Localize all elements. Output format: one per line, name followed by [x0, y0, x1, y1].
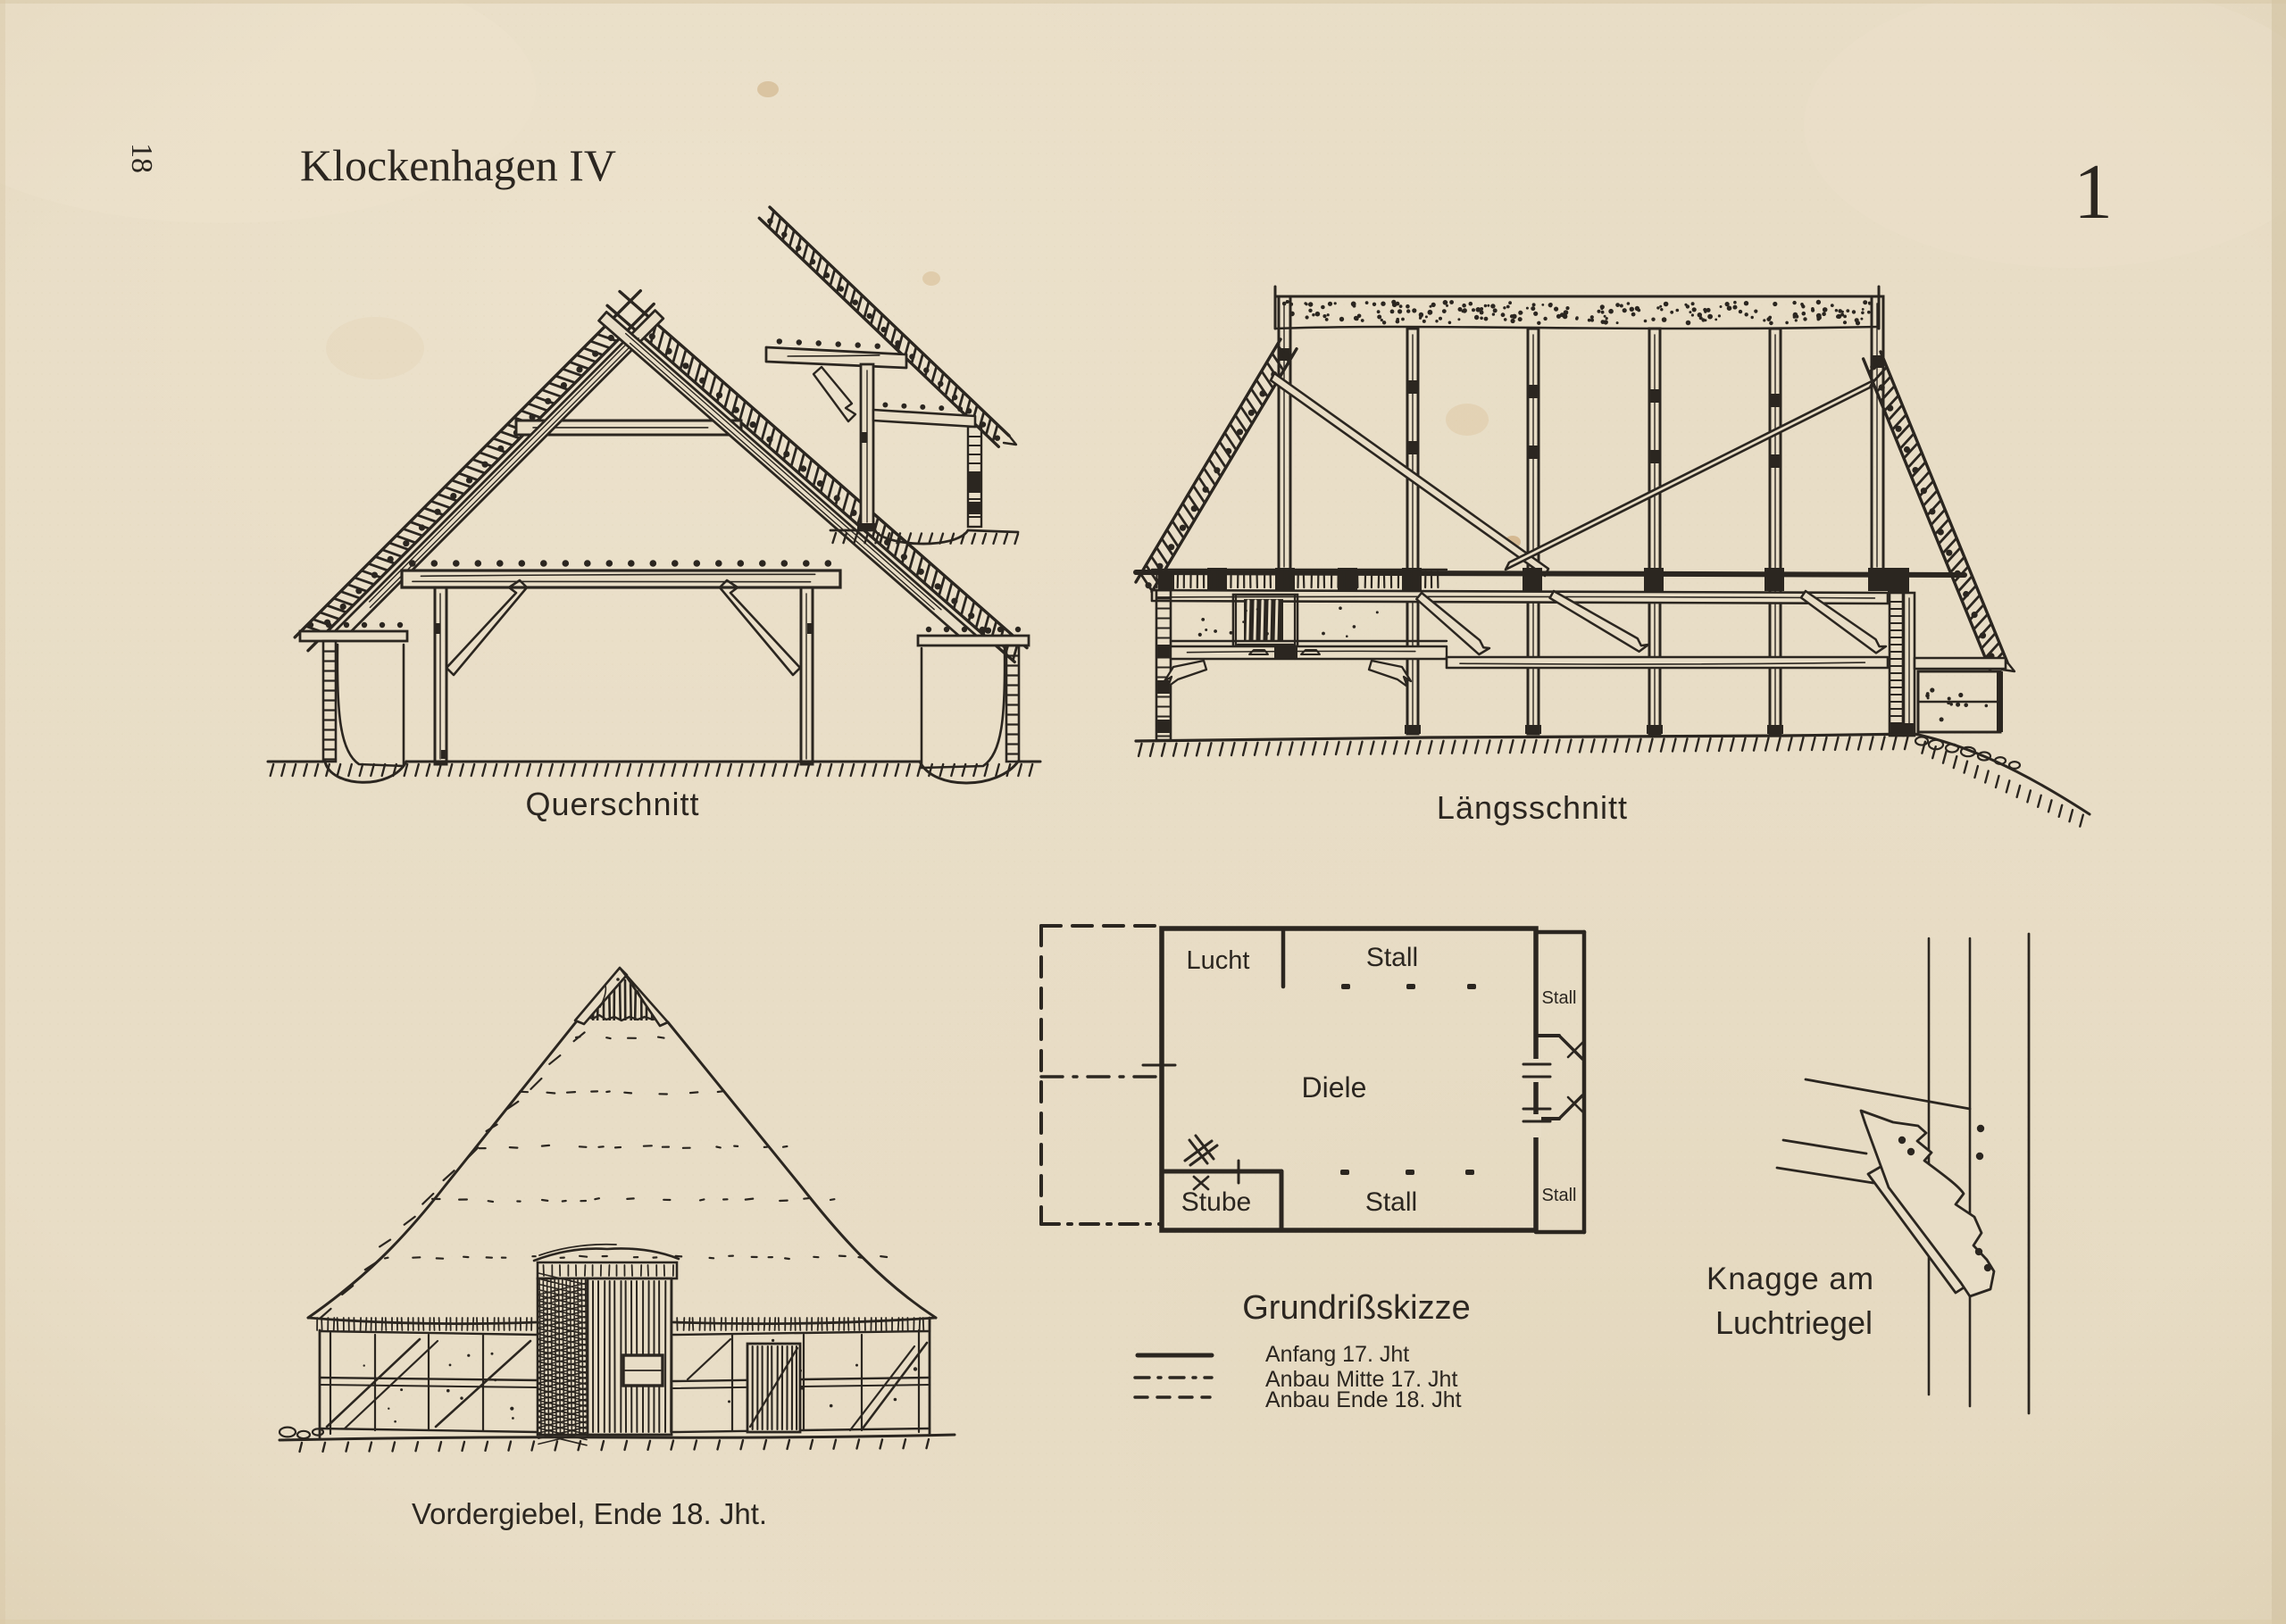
- svg-text:Längsschnitt: Längsschnitt: [1437, 789, 1628, 826]
- svg-text:Vordergiebel, Ende 18. Jht.: Vordergiebel, Ende 18. Jht.: [412, 1497, 767, 1530]
- svg-text:Stall: Stall: [1542, 1186, 1577, 1205]
- svg-text:Klockenhagen IV: Klockenhagen IV: [300, 140, 616, 190]
- svg-text:Anbau Ende 18. Jht: Anbau Ende 18. Jht: [1265, 1387, 1462, 1412]
- svg-text:1: 1: [2073, 149, 2113, 236]
- svg-text:Querschnitt: Querschnitt: [525, 786, 699, 822]
- svg-text:Diele: Diele: [1302, 1071, 1367, 1103]
- svg-text:Luchtriegel: Luchtriegel: [1715, 1304, 1873, 1341]
- svg-text:Stall: Stall: [1542, 988, 1577, 1008]
- svg-text:18: 18: [125, 143, 158, 173]
- svg-text:Stube: Stube: [1181, 1187, 1251, 1217]
- svg-text:Stall: Stall: [1366, 943, 1418, 972]
- svg-text:Stall: Stall: [1365, 1187, 1417, 1217]
- svg-text:Lucht: Lucht: [1187, 946, 1250, 975]
- svg-text:Knagge am: Knagge am: [1706, 1262, 1874, 1296]
- svg-text:Anfang 17. Jht: Anfang 17. Jht: [1265, 1342, 1409, 1367]
- svg-text:Grundrißskizze: Grundrißskizze: [1242, 1289, 1471, 1327]
